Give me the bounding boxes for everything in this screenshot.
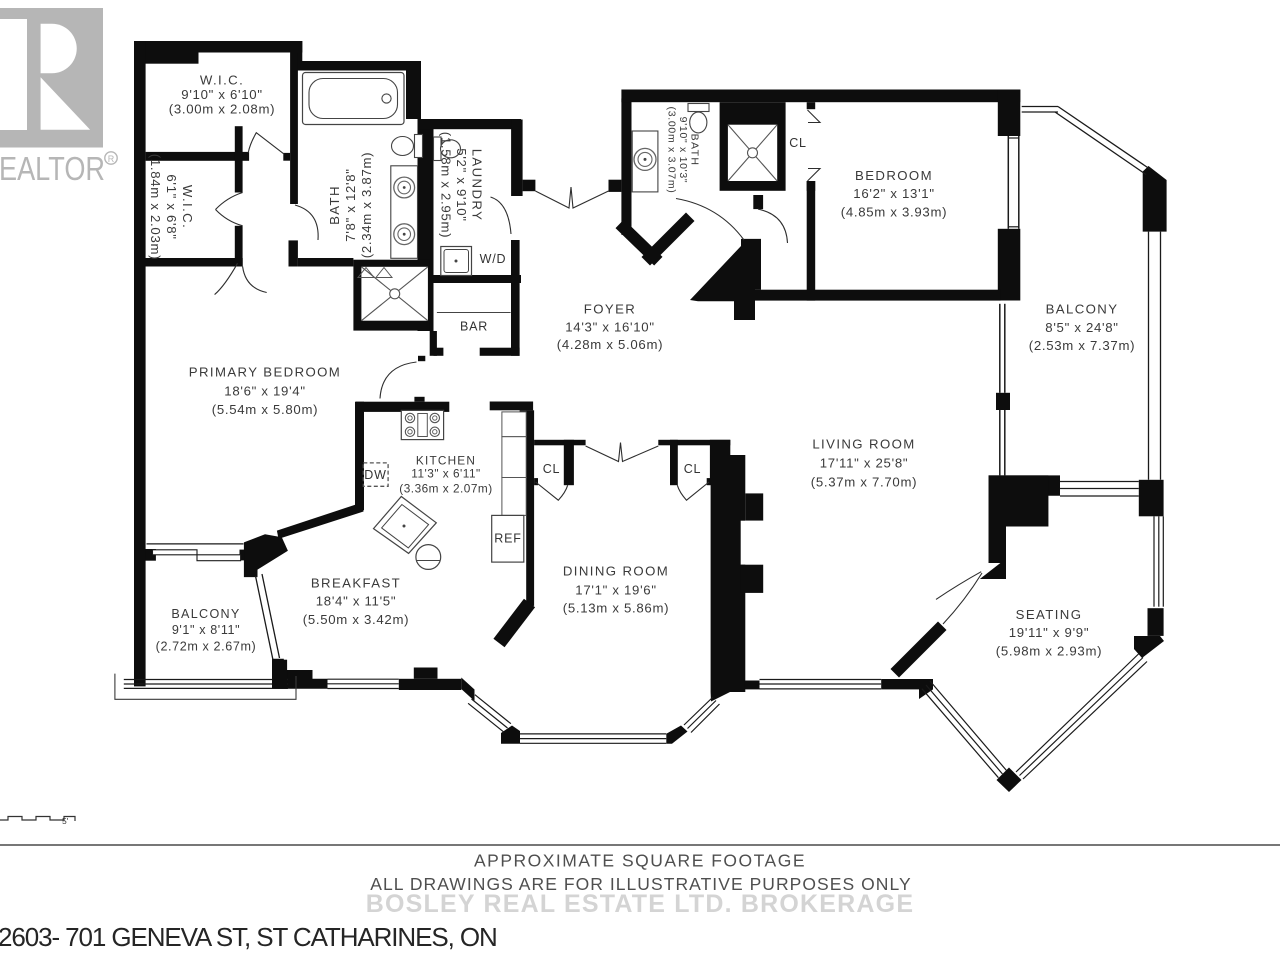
svg-text:R: R	[108, 154, 115, 164]
svg-text:BREAKFAST: BREAKFAST	[311, 576, 401, 591]
svg-text:BEDROOM: BEDROOM	[855, 168, 933, 183]
svg-text:(3.00m x 2.08m): (3.00m x 2.08m)	[169, 102, 276, 117]
svg-text:W/D: W/D	[480, 252, 507, 266]
svg-text:9'10" x 10'3": 9'10" x 10'3"	[677, 117, 689, 184]
svg-text:W.I.C.: W.I.C.	[180, 185, 195, 229]
svg-text:(2.34m x 3.87m): (2.34m x 3.87m)	[359, 152, 374, 259]
svg-text:(5.54m x 5.80m): (5.54m x 5.80m)	[212, 402, 319, 417]
svg-text:CL: CL	[789, 136, 807, 150]
svg-text:2603- 701 GENEVA ST, ST CATHAR: 2603- 701 GENEVA ST, ST CATHARINES, ON	[0, 922, 497, 952]
svg-text:EALTOR: EALTOR	[0, 150, 105, 187]
svg-text:BALCONY: BALCONY	[1046, 302, 1119, 317]
svg-text:(5.50m x 3.42m): (5.50m x 3.42m)	[303, 612, 410, 627]
svg-text:KITCHEN: KITCHEN	[416, 454, 476, 468]
svg-text:18'6" x 19'4": 18'6" x 19'4"	[224, 384, 305, 399]
svg-text:DINING ROOM: DINING ROOM	[563, 564, 669, 579]
svg-text:CL: CL	[543, 462, 561, 476]
svg-text:LAUNDRY: LAUNDRY	[470, 149, 485, 222]
svg-text:BATH: BATH	[689, 134, 701, 167]
svg-text:6'1" x 6'8": 6'1" x 6'8"	[164, 174, 179, 239]
svg-text:(5.98m x 2.93m): (5.98m x 2.93m)	[996, 644, 1103, 659]
svg-text:REF: REF	[494, 532, 521, 546]
svg-text:9'1" x 8'11": 9'1" x 8'11"	[172, 623, 240, 637]
svg-text:LIVING ROOM: LIVING ROOM	[812, 437, 915, 452]
svg-text:5'2" x 9'10": 5'2" x 9'10"	[454, 148, 469, 221]
svg-text:16'2" x 13'1": 16'2" x 13'1"	[853, 186, 934, 201]
svg-text:W.I.C.: W.I.C.	[200, 73, 244, 88]
svg-text:11'3" x 6'11": 11'3" x 6'11"	[411, 467, 480, 481]
svg-text:BATH: BATH	[327, 185, 342, 225]
svg-text:(3.36m x 2.07m): (3.36m x 2.07m)	[399, 482, 492, 496]
svg-text:17'11" x 25'8": 17'11" x 25'8"	[820, 456, 908, 471]
svg-text:(4.85m x 3.93m): (4.85m x 3.93m)	[841, 204, 948, 219]
svg-text:BALCONY: BALCONY	[171, 607, 240, 621]
svg-text:(5.13m x 5.86m): (5.13m x 5.86m)	[563, 601, 670, 616]
svg-text:(1.84m x 2.03m): (1.84m x 2.03m)	[148, 154, 163, 261]
svg-text:18'4" x 11'5": 18'4" x 11'5"	[316, 594, 396, 609]
svg-text:APPROXIMATE SQUARE FOOTAGE: APPROXIMATE SQUARE FOOTAGE	[474, 851, 806, 871]
svg-text:FOYER: FOYER	[584, 302, 636, 317]
svg-text:19'11" x 9'9": 19'11" x 9'9"	[1009, 625, 1089, 640]
svg-text:(4.28m x 5.06m): (4.28m x 5.06m)	[557, 337, 664, 352]
svg-text:9'10" x 6'10": 9'10" x 6'10"	[181, 87, 262, 102]
svg-text:BAR: BAR	[460, 320, 488, 334]
svg-text:ALL DRAWINGS ARE FOR ILLUSTRAT: ALL DRAWINGS ARE FOR ILLUSTRATIVE PURPOS…	[370, 874, 911, 894]
svg-text:(1.58m x 2.95m): (1.58m x 2.95m)	[439, 132, 454, 239]
svg-text:PRIMARY BEDROOM: PRIMARY BEDROOM	[189, 365, 341, 380]
svg-text:(3.00m x 3.07m): (3.00m x 3.07m)	[666, 107, 678, 194]
svg-text:CL: CL	[684, 462, 702, 476]
svg-text:SEATING: SEATING	[1016, 607, 1083, 622]
svg-text:(5.37m x 7.70m): (5.37m x 7.70m)	[811, 475, 918, 490]
svg-text:17'1" x 19'6": 17'1" x 19'6"	[575, 583, 656, 598]
svg-text:14'3" x 16'10": 14'3" x 16'10"	[565, 320, 654, 335]
svg-text:8'5" x 24'8": 8'5" x 24'8"	[1045, 320, 1118, 335]
svg-text:7'8" x 12'8": 7'8" x 12'8"	[343, 168, 358, 241]
svg-text:(2.72m x 2.67m): (2.72m x 2.67m)	[156, 640, 257, 654]
svg-text:(2.53m x 7.37m): (2.53m x 7.37m)	[1029, 338, 1136, 353]
svg-text:DW: DW	[364, 468, 386, 482]
svg-text:5': 5'	[62, 816, 69, 826]
svg-text:BOSLEY REAL ESTATE LTD. BROKE: BOSLEY REAL ESTATE LTD. BROKERAGE	[366, 890, 914, 918]
